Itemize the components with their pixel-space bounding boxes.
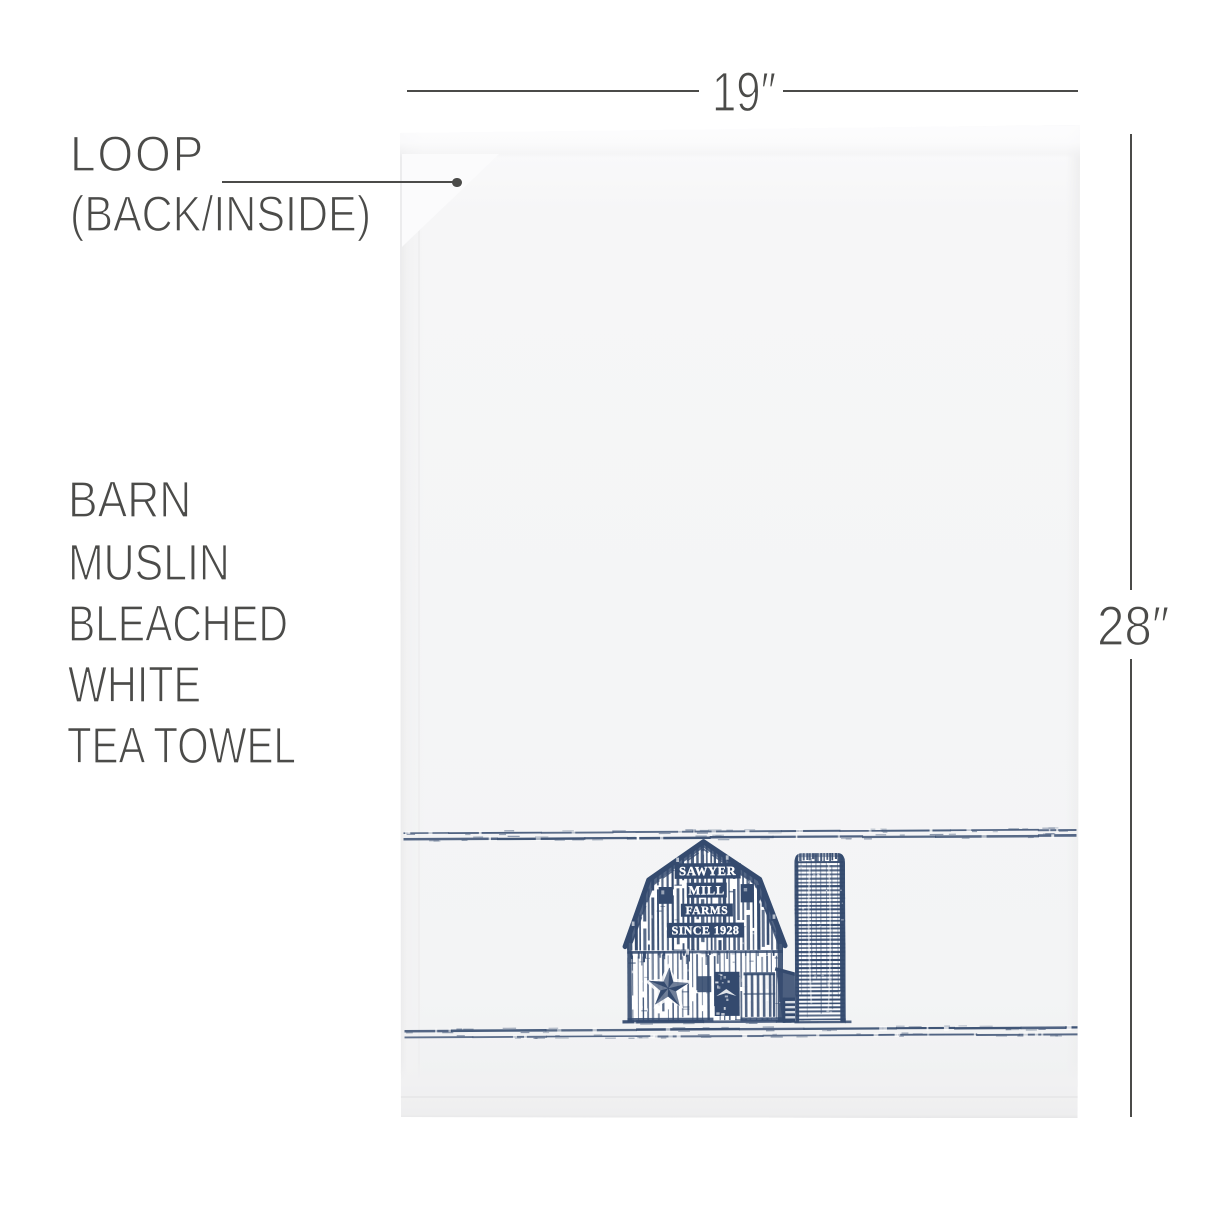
- svg-text:SAWYER: SAWYER: [679, 864, 737, 878]
- svg-text:MILL: MILL: [688, 883, 725, 897]
- svg-text:FARMS: FARMS: [686, 905, 729, 917]
- svg-text:SINCE 1928: SINCE 1928: [672, 923, 740, 937]
